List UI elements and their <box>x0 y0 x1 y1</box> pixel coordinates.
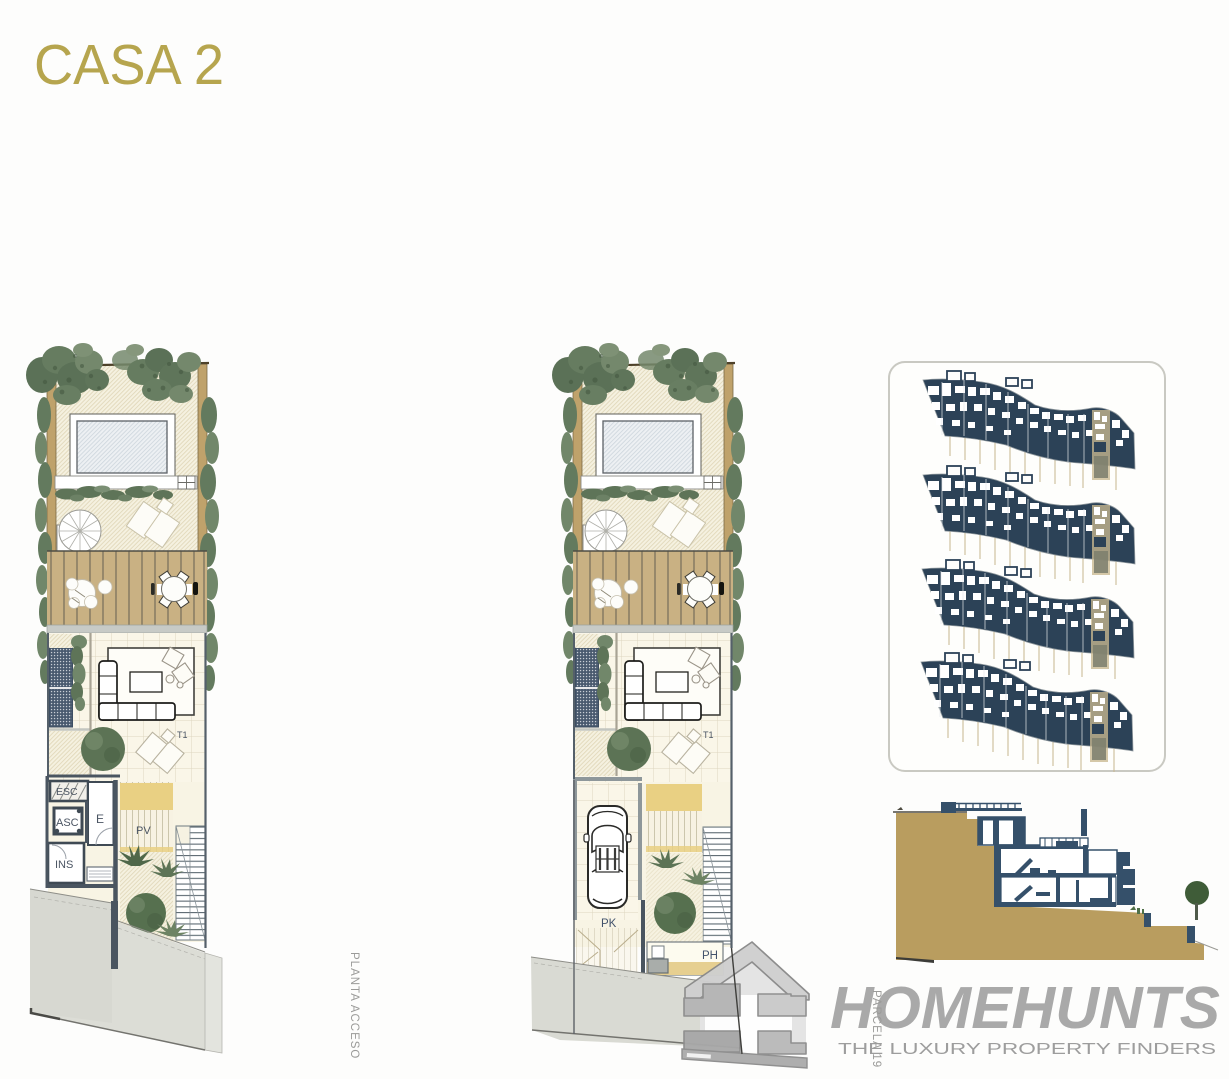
svg-text:ASC: ASC <box>56 817 79 829</box>
svg-text:PV: PV <box>136 825 151 837</box>
svg-text:PLANTA ACCESO: PLANTA ACCESO <box>348 952 360 1059</box>
svg-text:E: E <box>96 812 104 826</box>
svg-text:PH: PH <box>702 950 718 962</box>
svg-text:CASA 2: CASA 2 <box>34 33 224 97</box>
svg-text:ESC: ESC <box>56 786 78 798</box>
svg-text:THE LUXURY PROPERTY FINDERS: THE LUXURY PROPERTY FINDERS <box>838 1041 1216 1058</box>
svg-text:PARCELA 19: PARCELA 19 <box>870 990 882 1068</box>
svg-text:HOMEHUNTS: HOMEHUNTS <box>830 975 1220 1041</box>
svg-text:INS: INS <box>55 859 73 871</box>
